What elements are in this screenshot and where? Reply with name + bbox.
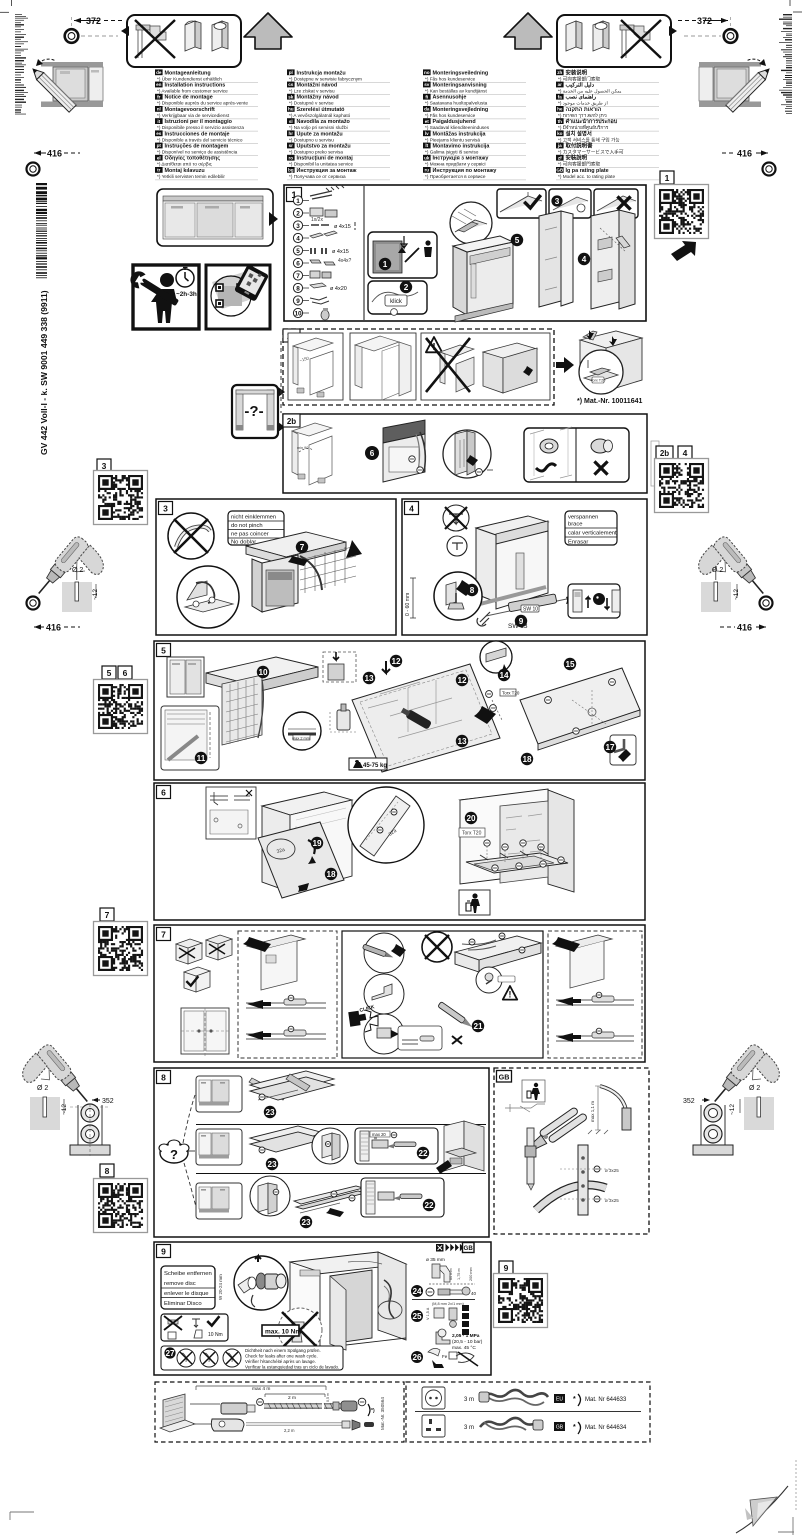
- svg-text:ar: ar: [558, 82, 563, 87]
- svg-text:sk: sk: [288, 94, 294, 99]
- svg-text:416: 416: [47, 149, 62, 159]
- svg-text:sv: sv: [424, 82, 430, 87]
- svg-text:klick: klick: [390, 299, 403, 305]
- svg-text:ø 35 mm: ø 35 mm: [426, 1257, 445, 1263]
- svg-text:el: el: [157, 155, 161, 160]
- svg-text:ro: ro: [289, 155, 294, 160]
- svg-text:SW 10: SW 10: [523, 607, 538, 613]
- svg-text:GV 442 Voll-I - k. SW 9001 44: GV 442 Voll-I - k. SW 9001 449 338 (9911…: [39, 290, 49, 455]
- svg-text:取付説明書: 取付説明書: [566, 142, 594, 150]
- svg-text:6: 6: [123, 668, 128, 678]
- svg-text:12: 12: [457, 676, 467, 685]
- svg-text:45-75 kg: 45-75 kg: [363, 763, 387, 769]
- svg-text:40: 40: [471, 1291, 477, 1296]
- svg-text:brace: brace: [568, 522, 583, 528]
- svg-text:calar verticalement: calar verticalement: [568, 531, 617, 537]
- svg-text:3: 3: [555, 197, 560, 206]
- svg-text:max 20: max 20: [372, 1132, 386, 1137]
- svg-text:설치 설명서: 설치 설명서: [566, 129, 592, 137]
- svg-text:zf: zf: [558, 155, 562, 160]
- svg-text:60 mm: 60 mm: [449, 1268, 453, 1280]
- svg-text:*) Na voljo pri servisni služb: *) Na voljo pri servisni službi: [289, 125, 348, 130]
- svg-text:Ø 2: Ø 2: [712, 567, 723, 574]
- svg-text:1x/2x: 1x/2x: [311, 217, 323, 223]
- svg-text:Dichtheit nach einem Spülgang: Dichtheit nach einem Spülgang prüfen.: [245, 1348, 321, 1353]
- svg-text:6: 6: [161, 788, 166, 798]
- svg-text:min 90: min 90: [297, 446, 308, 450]
- svg-text:*) Dostupné v servise: *) Dostupné v servise: [289, 101, 334, 106]
- svg-text:EU: EU: [556, 1397, 563, 1403]
- svg-text:26: 26: [412, 1353, 422, 1362]
- svg-text:*) Über Kundendienst erhältlic: *) Über Kundendienst erhältlich: [157, 75, 222, 81]
- svg-text:GB: GB: [556, 1425, 564, 1431]
- svg-text:nicht einklemmen: nicht einklemmen: [231, 515, 276, 521]
- svg-text:lv: lv: [425, 131, 429, 136]
- svg-text:ø 3x25: ø 3x25: [605, 1168, 619, 1173]
- svg-text:416: 416: [737, 149, 752, 159]
- svg-text:lt: lt: [425, 143, 428, 148]
- svg-text:23: 23: [267, 1160, 277, 1169]
- svg-text:คำแนะนำการประกอบ: คำแนะนำการประกอบ: [566, 117, 618, 125]
- svg-text:13: 13: [364, 674, 374, 683]
- svg-text:ø 3x25: ø 3x25: [605, 1198, 619, 1203]
- svg-text:*) มีจำหน่ายที่ศูนย์บริการ: *) มีจำหน่ายที่ศูนย์บริการ: [558, 124, 609, 131]
- svg-text:ja: ja: [557, 143, 562, 148]
- svg-text:sr: sr: [289, 143, 294, 148]
- svg-text:~12: ~12: [733, 589, 740, 600]
- svg-text:*) Model acc. to rating plate: *) Model acc. to rating plate: [558, 174, 615, 179]
- svg-text:Ø 2: Ø 2: [72, 567, 83, 574]
- svg-text:W 20-24 mm: W 20-24 mm: [218, 1274, 223, 1300]
- svg-text:352: 352: [683, 1098, 695, 1105]
- svg-text:4: 4: [582, 255, 587, 264]
- svg-text:3: 3: [163, 504, 168, 514]
- svg-text:ru: ru: [425, 168, 430, 173]
- svg-text:*) Dostępne w serwisie fabrycz: *) Dostępne w serwisie fabrycznym: [289, 76, 362, 81]
- svg-text:1: 1: [665, 173, 670, 183]
- svg-text:0,5 m: 0,5 m: [326, 1393, 330, 1402]
- svg-text:4x4x?: 4x4x?: [338, 258, 352, 264]
- svg-text:15: 15: [565, 660, 575, 669]
- svg-text:*) Disponible a través del ser: *) Disponible a través del servicio técn…: [157, 137, 243, 142]
- svg-text:5: 5: [161, 646, 166, 656]
- svg-text:*) カスタマーサービスで入手可: *) カスタマーサービスで入手可: [558, 149, 624, 156]
- svg-text:3 m: 3 m: [464, 1397, 474, 1403]
- svg-text:*) Приобретается в сервисе: *) Приобретается в сервисе: [425, 174, 486, 179]
- svg-text:*) از طریق خدمات موجود: *) از طریق خدمات موجود: [558, 101, 608, 107]
- svg-text:~2h-3h: ~2h-3h: [176, 291, 197, 298]
- svg-text:fr: fr: [157, 94, 161, 99]
- svg-text:*) Dostupno preko servisa: *) Dostupno preko servisa: [289, 150, 343, 155]
- svg-text:!: !: [509, 990, 512, 1000]
- svg-text:416: 416: [46, 623, 61, 633]
- svg-text:*) Available from customer ser: *) Available from customer service: [157, 89, 228, 94]
- svg-text:8: 8: [161, 1073, 166, 1083]
- svg-text:*) Kan beställas av kundtjänst: *) Kan beställas av kundtjänst: [425, 89, 487, 94]
- svg-text:10 Nm: 10 Nm: [208, 1332, 223, 1338]
- svg-text:2b: 2b: [660, 449, 669, 458]
- svg-text:es: es: [156, 131, 162, 136]
- svg-text:zh: zh: [557, 70, 562, 75]
- svg-text:*) Disponibil la unitatea serv: *) Disponibil la unitatea service: [289, 162, 353, 167]
- svg-text:*) Saatavana huoltopalvelusta: *) Saatavana huoltopalvelusta: [425, 101, 488, 106]
- svg-text:*) 고객 서비스를 통해 구입 가능: *) 고객 서비스를 통해 구입 가능: [558, 136, 620, 143]
- svg-text:~12: ~12: [92, 589, 99, 600]
- svg-text:*) Yetkili servisten temin edi: *) Yetkili servisten temin edilebilir: [157, 174, 225, 179]
- svg-text:9: 9: [161, 1247, 166, 1257]
- svg-text:2: 2: [404, 283, 409, 292]
- svg-text:4: 4: [296, 236, 300, 243]
- svg-text:?: ?: [170, 1147, 178, 1162]
- svg-text:5: 5: [107, 668, 112, 678]
- svg-text:22: 22: [424, 1201, 434, 1210]
- svg-text:uk: uk: [424, 155, 430, 160]
- svg-text:*): *): [371, 1408, 375, 1414]
- svg-text:2: 2: [296, 211, 300, 218]
- svg-text:416: 416: [737, 623, 752, 633]
- svg-text:11: 11: [197, 754, 206, 763]
- svg-text:pl: pl: [289, 70, 293, 75]
- svg-text:ø 4x15: ø 4x15: [334, 224, 351, 230]
- svg-text:tr: tr: [157, 168, 161, 173]
- svg-text:20: 20: [466, 814, 476, 823]
- svg-text:cs: cs: [288, 82, 294, 87]
- svg-text:*) Mat.-Nr. 10011641: *) Mat.-Nr. 10011641: [577, 398, 642, 405]
- svg-text:de: de: [156, 70, 162, 75]
- svg-text:Vérifier l'étanchéité après un: Vérifier l'étanchéité après un lavage.: [245, 1359, 316, 1364]
- svg-text:hu: hu: [288, 107, 294, 112]
- svg-text:22: 22: [418, 1149, 428, 1158]
- svg-text:nl: nl: [157, 107, 161, 112]
- svg-text:5: 5: [515, 236, 520, 245]
- svg-text:6: 6: [296, 261, 300, 268]
- svg-text:3: 3: [296, 223, 300, 230]
- svg-text:remove disc: remove disc: [164, 1281, 196, 1287]
- svg-text:*) Fås hos kundeservice: *) Fås hos kundeservice: [425, 112, 476, 118]
- svg-text:*) ניתן להשג דרך השירות: *) ניתן להשג דרך השירות: [558, 113, 607, 118]
- svg-text:Verificar la estanquiedad tras: Verificar la estanquiedad tras un ciclo …: [245, 1365, 339, 1370]
- svg-text:17: 17: [605, 743, 615, 752]
- svg-text:ø 4x20: ø 4x20: [330, 286, 347, 292]
- svg-text:*: *: [573, 1424, 576, 1431]
- svg-text:14: 14: [499, 671, 509, 680]
- svg-text:5: 5: [296, 248, 300, 255]
- svg-text:*) Dostupno u servisu: *) Dostupno u servisu: [289, 137, 334, 142]
- svg-text:*) Διατίθεται από το σέρβις: *) Διατίθεται από το σέρβις: [157, 161, 213, 167]
- svg-text:9: 9: [504, 1263, 509, 1273]
- svg-text:*) 可向客服部門索取: *) 可向客服部門索取: [558, 161, 601, 168]
- svg-text:(M,8 mm 2x/1 mm): (M,8 mm 2x/1 mm): [432, 1302, 465, 1306]
- svg-text:0 - 60 mm: 0 - 60 mm: [405, 593, 411, 616]
- svg-text:4: 4: [683, 448, 688, 458]
- svg-text:*) Disponibile presso il servi: *) Disponibile presso il servizio assist…: [157, 125, 244, 130]
- svg-text:Fe: Fe: [442, 1354, 448, 1359]
- svg-text:8: 8: [296, 286, 300, 293]
- svg-text:*) 可向客服部门索取: *) 可向客服部门索取: [558, 75, 601, 82]
- svg-text:verspannen: verspannen: [568, 515, 598, 521]
- svg-text:max. 10 Nm: max. 10 Nm: [265, 1329, 301, 1336]
- svg-text:hr: hr: [289, 131, 294, 136]
- svg-text:fa: fa: [558, 94, 563, 99]
- svg-text:2b: 2b: [287, 417, 296, 426]
- svg-text:Eliminar Disco: Eliminar Disco: [164, 1301, 202, 1307]
- svg-text:7: 7: [300, 543, 305, 552]
- svg-text:*) Saadaval klienditeeninduses: *) Saadaval klienditeeninduses: [425, 125, 490, 130]
- svg-text:ne pas coincer: ne pas coincer: [231, 532, 269, 538]
- svg-text:GB: GB: [464, 1245, 474, 1252]
- svg-text:*) Disponible auprès du servic: *) Disponible auprès du service après-ve…: [157, 101, 248, 106]
- svg-text:Torx T20: Torx T20: [462, 831, 482, 837]
- svg-text:8: 8: [470, 586, 475, 595]
- svg-text:6: 6: [370, 449, 375, 458]
- svg-text:GB: GB: [499, 1073, 510, 1082]
- svg-text:bg: bg: [288, 168, 294, 173]
- svg-text:*) Verkrijgbaar via de service: *) Verkrijgbaar via de servicedienst: [157, 113, 230, 118]
- svg-text:Torx T20: Torx T20: [591, 379, 606, 383]
- svg-text:max 4 m: max 4 m: [252, 1386, 270, 1392]
- svg-text:2,2 m: 2,2 m: [284, 1428, 295, 1433]
- svg-text:3 m: 3 m: [464, 1425, 474, 1431]
- svg-text:Check for leaks after one wash: Check for leaks after one wash cycle.: [245, 1354, 318, 1359]
- svg-text:*) A vevőszolgálatnál kapható: *) A vevőszolgálatnál kapható: [289, 113, 351, 118]
- svg-text:it: it: [157, 119, 160, 124]
- svg-text:8: 8: [105, 1166, 110, 1176]
- svg-text:he: he: [557, 107, 563, 112]
- svg-text:2 m: 2 m: [288, 1395, 296, 1401]
- svg-text:~12: ~12: [729, 1104, 736, 1115]
- svg-text:372: 372: [86, 16, 101, 26]
- svg-text:安裝說明: 安裝說明: [566, 154, 588, 162]
- svg-text:10: 10: [258, 668, 268, 677]
- svg-text:-?-: -?-: [244, 403, 263, 420]
- svg-text:th: th: [558, 119, 563, 124]
- svg-text:10: 10: [294, 311, 302, 318]
- svg-text:21: 21: [473, 1022, 483, 1031]
- svg-text:352: 352: [102, 1098, 114, 1105]
- svg-text:sl: sl: [289, 119, 293, 124]
- svg-text:7: 7: [161, 930, 166, 940]
- svg-text:*) Fås hos kundeservice: *) Fås hos kundeservice: [425, 75, 476, 81]
- svg-text:1: 1: [296, 198, 300, 205]
- svg-text:12: 12: [391, 657, 401, 666]
- svg-text:3: 3: [102, 461, 107, 471]
- svg-text:1,75 m: 1,75 m: [457, 1268, 461, 1280]
- svg-text:~12: ~12: [61, 1104, 68, 1115]
- svg-text:*) Galima įsigyti iš serviso: *) Galima įsigyti iš serviso: [425, 150, 479, 155]
- svg-text:pt: pt: [157, 143, 162, 148]
- svg-text:9: 9: [519, 617, 524, 626]
- svg-text:fi: fi: [425, 94, 428, 99]
- svg-text:Torx T20: Torx T20: [502, 691, 520, 696]
- svg-text:24: 24: [412, 1287, 422, 1296]
- svg-text:7: 7: [105, 910, 110, 920]
- svg-text:no: no: [424, 70, 430, 75]
- svg-text:19: 19: [312, 839, 322, 848]
- svg-text:do not pinch: do not pinch: [231, 523, 263, 529]
- svg-text:23: 23: [265, 1108, 275, 1117]
- svg-text:enlever le disque: enlever le disque: [164, 1291, 209, 1297]
- svg-text:27: 27: [165, 1349, 175, 1358]
- svg-text:en: en: [156, 82, 162, 87]
- svg-text:23: 23: [301, 1218, 311, 1227]
- svg-text:max 2 mm: max 2 mm: [292, 736, 310, 740]
- svg-text:GB: GB: [556, 168, 564, 173]
- svg-text:200 mm: 200 mm: [469, 1267, 473, 1281]
- svg-text:ø 4x15: ø 4x15: [332, 249, 349, 255]
- svg-text:7: 7: [296, 273, 300, 280]
- svg-text:Mat.-Nr. 350564: Mat.-Nr. 350564: [380, 1397, 385, 1430]
- svg-text:2,05 - 1 MPa: 2,05 - 1 MPa: [452, 1333, 480, 1339]
- svg-text:*) Lze získat v servisu: *) Lze získat v servisu: [289, 89, 335, 94]
- svg-text:da: da: [424, 107, 430, 112]
- svg-text:Mat. Nr 644634: Mat. Nr 644634: [585, 1425, 627, 1431]
- svg-text:18: 18: [326, 870, 336, 879]
- svg-text:Enrasar: Enrasar: [568, 540, 588, 546]
- svg-text:*) Получава се от сервиза: *) Получава се от сервиза: [289, 174, 346, 179]
- svg-text:ko: ko: [557, 131, 563, 136]
- svg-text:*) Можна придбати у сервісі: *) Можна придбати у сервісі: [425, 162, 486, 167]
- svg-text:et: et: [425, 119, 430, 124]
- svg-text:Ø 2: Ø 2: [37, 1085, 48, 1092]
- svg-text:18: 18: [522, 755, 532, 764]
- svg-text:1: 1: [383, 260, 388, 269]
- svg-text:25: 25: [412, 1312, 422, 1321]
- svg-text:(20,5 - 10 bar): (20,5 - 10 bar): [452, 1339, 483, 1345]
- svg-text:Scheibe entfernen: Scheibe entfernen: [164, 1271, 212, 1277]
- svg-text:372: 372: [697, 16, 712, 26]
- svg-text:4: 4: [409, 504, 414, 514]
- svg-text:max. 45 °C: max. 45 °C: [452, 1345, 476, 1351]
- svg-text:Mat. Nr 644633: Mat. Nr 644633: [585, 1397, 627, 1403]
- svg-text:13: 13: [457, 737, 467, 746]
- svg-text:max 1,1 m: max 1,1 m: [590, 1101, 595, 1122]
- svg-text:安装说明: 安装说明: [566, 68, 588, 76]
- svg-text:*) Pieejams klientu servisā: *) Pieejams klientu servisā: [425, 137, 480, 142]
- svg-text:*) يمكن الحصول عليه من الخدمة: *) يمكن الحصول عليه من الخدمة: [558, 89, 622, 95]
- svg-text:V 1,5 A: V 1,5 A: [426, 1307, 430, 1320]
- svg-text:*: *: [573, 1396, 576, 1403]
- svg-text:*) Disponível no serviço de as: *) Disponível no serviço de assistência: [157, 150, 238, 155]
- svg-text:9: 9: [296, 298, 300, 305]
- svg-text:Ø 2: Ø 2: [749, 1085, 760, 1092]
